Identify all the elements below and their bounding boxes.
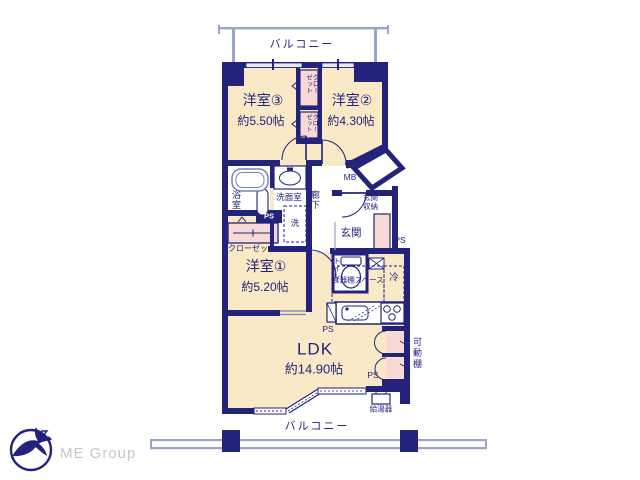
wall-bottom-right bbox=[366, 386, 406, 392]
window-west3-tick bbox=[272, 59, 274, 70]
logo-bird-wing bbox=[34, 441, 47, 456]
balcony-top-label: バルコニー bbox=[270, 40, 335, 51]
water-heater-label: 給湯器 bbox=[370, 405, 393, 413]
washroom-label: 洗面室 bbox=[276, 193, 302, 202]
cupboard-space-label: 食器棚スペース bbox=[332, 276, 384, 284]
bottom-rail-cap-right bbox=[485, 439, 487, 449]
west1-size: 約5.20帖 bbox=[241, 281, 288, 293]
bottom-rail-1 bbox=[150, 439, 487, 441]
wall-corridor-left bbox=[306, 160, 312, 312]
west2-name: 洋室② bbox=[332, 93, 373, 107]
wall-west1-bottom bbox=[222, 310, 280, 316]
company-logo-text: ME Group bbox=[60, 446, 136, 461]
toilet-tank bbox=[341, 257, 361, 265]
top-rail bbox=[218, 27, 389, 29]
top-rail-cap-left bbox=[218, 25, 220, 34]
top-rail-cap-right bbox=[387, 25, 389, 34]
west1-name: 洋室① bbox=[246, 259, 287, 273]
pillar-left bbox=[222, 430, 240, 452]
wall-shelf-top bbox=[382, 326, 410, 331]
west2-size: 約4.30帖 bbox=[327, 115, 374, 127]
floor-plan-drawing bbox=[0, 0, 640, 480]
bottom-rail-cap-left bbox=[150, 439, 152, 449]
hallway-label: 廊下 bbox=[310, 190, 319, 220]
kitchen-faucet bbox=[345, 307, 348, 310]
movable-shelf-1 bbox=[386, 331, 404, 354]
meter-box-label: MB bbox=[344, 173, 357, 182]
ps-label-kitchen: PS bbox=[322, 325, 333, 334]
top-rail-post-left bbox=[232, 29, 235, 62]
closet2-label: クローゼット bbox=[302, 114, 317, 133]
closet1-label: クローゼット bbox=[301, 74, 317, 95]
entrance-storage-cabinet bbox=[374, 214, 390, 250]
logo-bird-icon bbox=[11, 427, 52, 470]
ps-label-bath: PS bbox=[264, 212, 274, 220]
entrance-storage-label: 玄関収納 bbox=[362, 193, 379, 211]
wall-kitchen-right bbox=[404, 252, 410, 392]
entrance-label: 玄関 bbox=[341, 228, 362, 239]
refrigerator-label: 冷 bbox=[389, 273, 399, 283]
pillar-right bbox=[400, 430, 418, 452]
bottom-rail-2 bbox=[150, 447, 487, 449]
west3-name: 洋室③ bbox=[243, 93, 284, 107]
window-west2-tick bbox=[337, 59, 339, 70]
top-rail-post-right bbox=[374, 29, 377, 62]
wall-west3-bottom bbox=[222, 160, 280, 166]
wall-entrance-top-left bbox=[332, 190, 342, 196]
wall-shelf-bottom bbox=[382, 379, 410, 386]
wall-corner-stub bbox=[400, 392, 410, 404]
wall-closet-divider bbox=[296, 106, 322, 110]
wall-left bbox=[222, 62, 228, 414]
movable-shelf-2 bbox=[386, 358, 404, 380]
vanity-faucet bbox=[287, 168, 293, 171]
vanity-sink bbox=[280, 171, 301, 185]
ps-label-entrance: PS bbox=[394, 236, 405, 245]
wall-bath-divider-top bbox=[270, 166, 274, 188]
ldk-name: LDK bbox=[297, 341, 333, 358]
laundry-label: 洗 bbox=[291, 219, 300, 228]
ps-label-shelf: PS bbox=[367, 371, 378, 380]
west3-size: 約5.50帖 bbox=[237, 115, 284, 127]
floor-plan-canvas: バルコニー 洋室③ 約5.50帖 洋室② 約4.30帖 クローゼット クローゼッ… bbox=[0, 0, 640, 480]
water-heater-box bbox=[372, 394, 390, 404]
bath-label: 浴室 bbox=[231, 190, 240, 220]
wall-shelf-mid bbox=[382, 353, 410, 357]
ldk-size: 約14.90帖 bbox=[285, 363, 344, 376]
movable-shelf-label: 可動棚 bbox=[412, 337, 421, 381]
wall-closet-bottom bbox=[296, 138, 322, 144]
balcony-bottom-label: バルコニー bbox=[285, 422, 350, 433]
wall-bottom-left bbox=[222, 408, 254, 414]
wall-right-upper bbox=[382, 62, 388, 152]
closet-west1-label: クローゼット bbox=[228, 245, 276, 253]
